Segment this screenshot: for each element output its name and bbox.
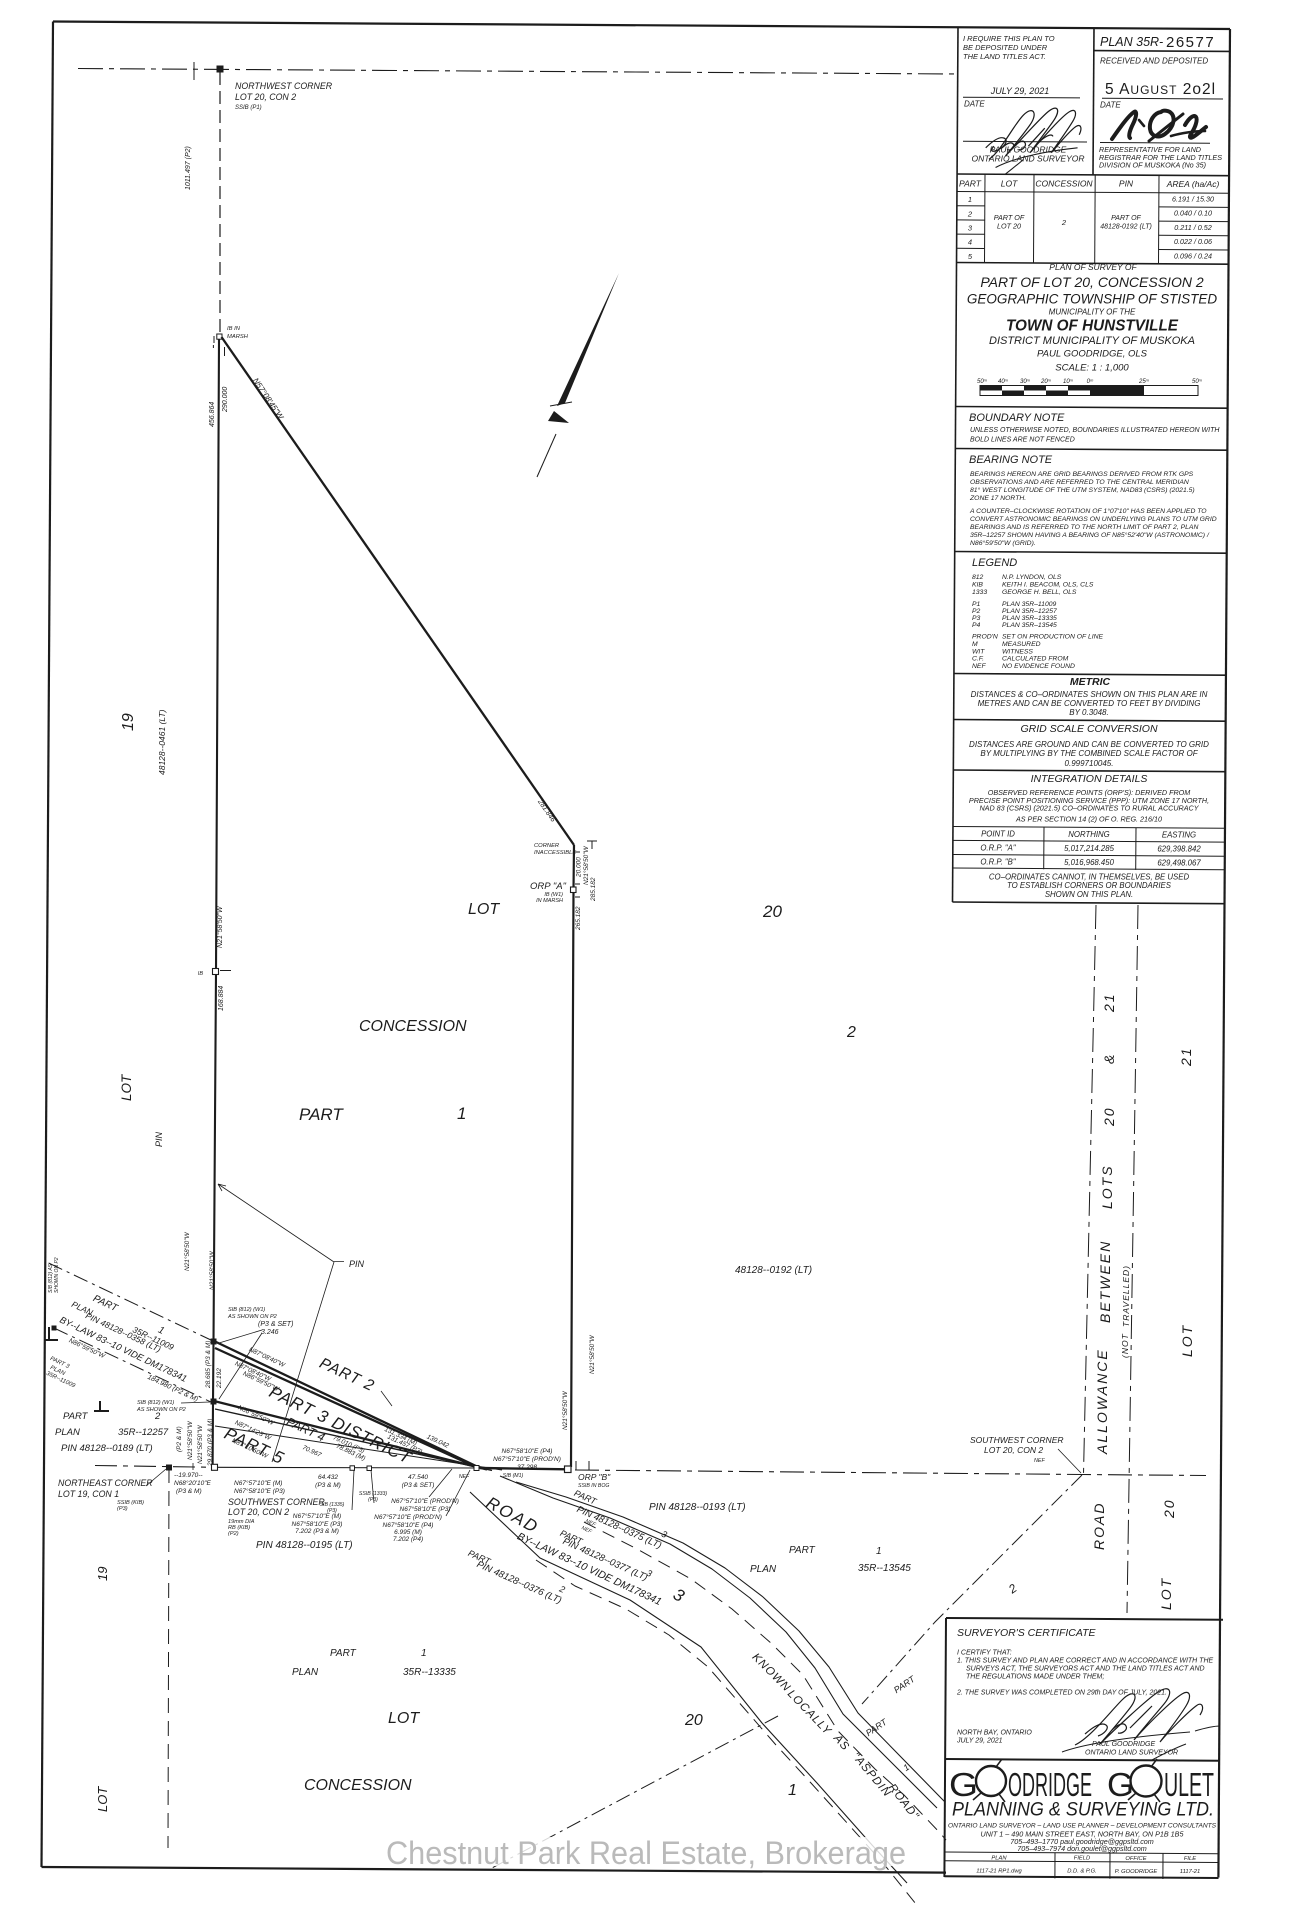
svg-text:6.995 (M): 6.995 (M) — [394, 1529, 422, 1536]
svg-text:3: 3 — [968, 224, 973, 233]
svg-text:SHOWN ON P2: SHOWN ON P2 — [54, 1257, 60, 1293]
svg-text:N67°58'10"E (P3): N67°58'10"E (P3) — [400, 1505, 451, 1513]
svg-text:SURVEYS ACT, THE SURVEYORS ACT: SURVEYS ACT, THE SURVEYORS ACT AND THE L… — [966, 1666, 1205, 1673]
svg-text:SSIB (P1): SSIB (P1) — [235, 105, 262, 111]
svg-text:(P3 & M): (P3 & M) — [176, 1488, 202, 1495]
svg-text:N21°58'50"W: N21°58'50"W — [208, 1250, 216, 1290]
svg-text:3.246: 3.246 — [261, 1329, 279, 1336]
svg-text:N67°57'10"E (M): N67°57'10"E (M) — [293, 1512, 341, 1520]
svg-text:NEF: NEF — [580, 1525, 593, 1535]
svg-text:PLAN OF SURVEY OF: PLAN OF SURVEY OF — [1049, 262, 1137, 272]
svg-text:CONCESSION: CONCESSION — [304, 1777, 412, 1794]
svg-text:TRAVELLED): TRAVELLED) — [1121, 1265, 1131, 1327]
svg-text:(P3): (P3) — [368, 1497, 378, 1503]
svg-text:BETWEEN: BETWEEN — [1097, 1240, 1113, 1323]
svg-text:20: 20 — [1161, 1498, 1177, 1519]
svg-text:4: 4 — [968, 238, 972, 247]
svg-text:2: 2 — [1005, 1581, 1020, 1597]
svg-text:DATE: DATE — [1100, 101, 1121, 110]
svg-text:ALLOWANCE: ALLOWANCE — [1094, 1348, 1110, 1455]
svg-text:DISTANCES ARE GROUND AND CAN B: DISTANCES ARE GROUND AND CAN BE CONVERTE… — [969, 740, 1209, 749]
svg-text:LOT: LOT — [1158, 1577, 1174, 1610]
svg-text:P2: P2 — [972, 608, 981, 615]
svg-text:PART: PART — [330, 1648, 357, 1659]
svg-text:28.685 (P3 & M): 28.685 (P3 & M) — [205, 1341, 212, 1389]
svg-text:0.999710045.: 0.999710045. — [1065, 759, 1114, 768]
svg-text:AS: AS — [830, 1732, 851, 1754]
svg-text:WITNESS: WITNESS — [1002, 648, 1033, 655]
svg-text:N57°08'45"W: N57°08'45"W — [251, 376, 286, 422]
svg-text:21: 21 — [1178, 1046, 1194, 1067]
svg-text:N67°57'10"E (PROD'N): N67°57'10"E (PROD'N) — [374, 1513, 442, 1521]
svg-text:TOWN OF HUNSTVILLE: TOWN OF HUNSTVILLE — [1006, 318, 1179, 335]
svg-text:PART: PART — [91, 1293, 120, 1314]
svg-text:BOLD LINES ARE NOT FENCED: BOLD LINES ARE NOT FENCED — [970, 437, 1075, 444]
svg-text:7.202 (P3 & M): 7.202 (P3 & M) — [295, 1528, 339, 1535]
svg-text:N67°58'10"E (P4): N67°58'10"E (P4) — [502, 1447, 553, 1455]
svg-text:456.864: 456.864 — [209, 402, 216, 427]
svg-text:PIN 48128--0189 (LT): PIN 48128--0189 (LT) — [61, 1443, 153, 1454]
svg-text:64.432: 64.432 — [318, 1474, 338, 1481]
svg-text:GRID SCALE CONVERSION: GRID SCALE CONVERSION — [1020, 723, 1158, 735]
svg-text:N86°59'50"W (GRID).: N86°59'50"W (GRID). — [970, 539, 1036, 547]
svg-text:25m: 25m — [1138, 378, 1150, 386]
svg-text:BOUNDARY NOTE: BOUNDARY NOTE — [969, 412, 1065, 424]
svg-text:2: 2 — [846, 1024, 856, 1041]
svg-text:1. THIS SURVEY AND PLAN ARE C: 1. THIS SURVEY AND PLAN ARE CORRECT AND … — [957, 1658, 1214, 1665]
svg-text:JULY 29, 2021: JULY 29, 2021 — [956, 1738, 1003, 1745]
svg-text:N67°57'10"E (M): N67°57'10"E (M) — [234, 1479, 282, 1487]
svg-text:1117-21 RP1.dwg: 1117-21 RP1.dwg — [976, 1869, 1022, 1875]
svg-text:(P3 & SET): (P3 & SET) — [258, 1321, 293, 1328]
svg-text:ZONE 17 NORTH.: ZONE 17 NORTH. — [969, 495, 1026, 502]
svg-text:629,498.067: 629,498.067 — [1157, 859, 1201, 868]
svg-text:812: 812 — [972, 574, 984, 581]
svg-text:(P3): (P3) — [117, 1506, 128, 1512]
svg-text:D.D. & P.G.: D.D. & P.G. — [1067, 1869, 1097, 1875]
svg-text:(NOT: (NOT — [1120, 1333, 1130, 1358]
svg-text:20m: 20m — [1040, 378, 1052, 386]
svg-text:N21°58'50"W: N21°58'50"W — [186, 1420, 194, 1460]
svg-text:Chestnut Park Real Estate, Bro: Chestnut Park Real Estate, Brokerage — [386, 1835, 906, 1871]
svg-text:(P3 & M): (P3 & M) — [315, 1482, 341, 1489]
svg-text:N.P. LYNDON, OLS: N.P. LYNDON, OLS — [1002, 574, 1062, 581]
svg-text:0.211 / 0.52: 0.211 / 0.52 — [1174, 223, 1211, 232]
svg-text:48128-0192 (LT): 48128-0192 (LT) — [1100, 224, 1152, 231]
svg-text:FILE: FILE — [1184, 1856, 1196, 1862]
svg-text:NAD 83 (CSRS) (2021.5) CO–ORDI: NAD 83 (CSRS) (2021.5) CO–ORDINATES TO R… — [979, 804, 1199, 813]
svg-text:AS SHOWN ON P2: AS SHOWN ON P2 — [136, 1407, 187, 1413]
svg-text:NORTHEAST CORNER: NORTHEAST CORNER — [58, 1478, 153, 1488]
svg-text:M: M — [972, 641, 978, 648]
svg-text:19: 19 — [120, 713, 137, 731]
svg-text:PART: PART — [864, 1716, 890, 1738]
svg-text:N21°58'50"W: N21°58'50"W — [196, 1424, 204, 1464]
svg-text:3: 3 — [670, 1585, 688, 1606]
svg-text:20: 20 — [684, 1712, 703, 1729]
svg-text:PART: PART — [789, 1545, 816, 1556]
svg-text:N21°58'50"W: N21°58'50"W — [561, 1390, 569, 1430]
svg-text:P. GOODRIDGE: P. GOODRIDGE — [1115, 1869, 1158, 1875]
svg-text:35R--12257: 35R--12257 — [118, 1427, 169, 1438]
svg-text:ULET: ULET — [1164, 1766, 1214, 1803]
svg-text:MEASURED: MEASURED — [1002, 641, 1041, 648]
svg-text:BE DEPOSITED UNDER: BE DEPOSITED UNDER — [963, 43, 1048, 52]
svg-text:I CERTIFY THAT:: I CERTIFY THAT: — [957, 1650, 1012, 1657]
svg-text:N21°58'50"W: N21°58'50"W — [183, 1231, 191, 1271]
svg-text:LOT 20, CON 2: LOT 20, CON 2 — [228, 1507, 289, 1517]
svg-text:OFFICE: OFFICE — [1125, 1856, 1146, 1862]
svg-text:CALCULATED FROM: CALCULATED FROM — [1002, 656, 1069, 663]
svg-text:WIT: WIT — [972, 648, 985, 655]
svg-text:(P2): (P2) — [228, 1531, 239, 1537]
svg-text:281.846: 281.846 — [536, 798, 557, 824]
svg-text:P4: P4 — [972, 622, 981, 629]
svg-text:THE LAND TITLES ACT.: THE LAND TITLES ACT. — [963, 52, 1046, 61]
svg-text:1: 1 — [876, 1546, 882, 1557]
svg-text:N21°58'50"W: N21°58'50"W — [216, 905, 224, 948]
svg-text:PART: PART — [892, 1673, 918, 1695]
svg-text:N67°58'10"E (P4): N67°58'10"E (P4) — [383, 1521, 434, 1529]
svg-text:PIN: PIN — [154, 1131, 164, 1147]
svg-text:G: G — [949, 1766, 978, 1803]
svg-text:265.182: 265.182 — [575, 906, 582, 931]
svg-text:NEF: NEF — [1034, 1458, 1045, 1464]
svg-text:PIN 48128--0195 (LT): PIN 48128--0195 (LT) — [256, 1540, 353, 1551]
svg-text:ORP "B": ORP "B" — [578, 1472, 611, 1482]
svg-text:30m: 30m — [1020, 378, 1031, 386]
svg-text:PIN 48128--0376 (LT): PIN 48128--0376 (LT) — [475, 1559, 563, 1606]
svg-text:KIB: KIB — [972, 582, 983, 589]
svg-text:IB IN: IB IN — [227, 326, 241, 332]
svg-text:P1: P1 — [972, 601, 981, 608]
svg-text:FIELD: FIELD — [1074, 1856, 1090, 1862]
svg-text:5: 5 — [968, 252, 973, 261]
svg-text:AS SHOWN ON P2: AS SHOWN ON P2 — [227, 1314, 278, 1320]
svg-text:UNLESS OTHERWISE NOTED, BOUNDA: UNLESS OTHERWISE NOTED, BOUNDARIES ILLUS… — [970, 427, 1220, 434]
svg-text:0.096 / 0.24: 0.096 / 0.24 — [1174, 252, 1212, 261]
svg-text:I REQUIRE THIS PLAN TO: I REQUIRE THIS PLAN TO — [963, 34, 1055, 43]
svg-text:NO EVIDENCE FOUND: NO EVIDENCE FOUND — [1002, 663, 1075, 670]
svg-text:SOUTHWEST CORNER: SOUTHWEST CORNER — [970, 1435, 1064, 1445]
svg-text:N67°58'10"E (P3): N67°58'10"E (P3) — [234, 1487, 285, 1495]
svg-text:20: 20 — [762, 902, 782, 921]
svg-text:629,398.842: 629,398.842 — [1157, 845, 1201, 854]
svg-text:PLAN 35R-: PLAN 35R- — [1100, 35, 1163, 49]
svg-text:GEORGE H. BELL, OLS: GEORGE H. BELL, OLS — [1002, 589, 1077, 596]
svg-text:C.F.: C.F. — [972, 656, 984, 663]
svg-text:LOT: LOT — [468, 901, 500, 918]
svg-text:NEF: NEF — [459, 1474, 470, 1480]
svg-text:10m: 10m — [1063, 378, 1074, 386]
svg-text:168.884: 168.884 — [218, 986, 225, 1011]
svg-text:50m: 50m — [1192, 378, 1203, 386]
svg-text:20: 20 — [1101, 1106, 1117, 1127]
svg-text:A COUNTER–CLOCKWISE ROTATION O: A COUNTER–CLOCKWISE ROTATION OF 1°07'10"… — [969, 507, 1207, 515]
svg-text:5,016,968.450: 5,016,968.450 — [1064, 858, 1115, 867]
svg-text:26577: 26577 — [1166, 34, 1215, 51]
svg-text:PLAN 35R–13335: PLAN 35R–13335 — [1002, 615, 1057, 622]
svg-text:ONTARIO LAND SURVEYOR: ONTARIO LAND SURVEYOR — [971, 154, 1084, 164]
svg-text:1117-21: 1117-21 — [1180, 1869, 1200, 1875]
svg-text:O.R.P. "B": O.R.P. "B" — [980, 858, 1017, 867]
svg-text:1011.497 (P2): 1011.497 (P2) — [185, 146, 192, 190]
svg-text:PIN: PIN — [349, 1259, 365, 1269]
svg-text:DISTANCES & CO–ORDINATES SHOWN: DISTANCES & CO–ORDINATES SHOWN ON THIS P… — [971, 690, 1208, 699]
svg-text:IB: IB — [198, 971, 204, 977]
svg-text:PLAN 35R–13545: PLAN 35R–13545 — [1002, 622, 1057, 629]
svg-text:2: 2 — [557, 1583, 567, 1595]
svg-text:21: 21 — [1101, 992, 1117, 1013]
svg-text:1: 1 — [421, 1648, 427, 1659]
svg-text:MARSH: MARSH — [227, 334, 249, 340]
svg-text:20.000: 20.000 — [576, 857, 583, 878]
svg-text:KEITH I. BEACOM, OLS, CLS: KEITH I. BEACOM, OLS, CLS — [1002, 582, 1094, 589]
svg-text:3: 3 — [645, 1568, 654, 1579]
svg-text:ROAD": ROAD" — [886, 1782, 922, 1823]
svg-text:PART: PART — [959, 179, 982, 189]
svg-text:N67°57'10"E (PROD'N): N67°57'10"E (PROD'N) — [391, 1497, 459, 1505]
svg-text:N67°57'10"E (PROD'N): N67°57'10"E (PROD'N) — [493, 1455, 561, 1463]
svg-text:290.000: 290.000 — [222, 387, 229, 413]
svg-text:CONCESSION: CONCESSION — [1035, 179, 1093, 189]
svg-text:BY MULTIPLYING BY THE COMBINED: BY MULTIPLYING BY THE COMBINED SCALE FAC… — [980, 749, 1198, 758]
svg-text:PLAN 35R–12257: PLAN 35R–12257 — [1002, 608, 1057, 615]
svg-text:THE REGULATIONS MADE UNDER THE: THE REGULATIONS MADE UNDER THEM; — [966, 1674, 1104, 1681]
svg-text:EASTING: EASTING — [1162, 831, 1196, 840]
svg-text:SET ON PRODUCTION OF LINE: SET ON PRODUCTION OF LINE — [1002, 634, 1104, 641]
svg-text:LOT 20, CON 2: LOT 20, CON 2 — [235, 92, 296, 102]
svg-text:INTEGRATION DETAILS: INTEGRATION DETAILS — [1031, 773, 1148, 785]
svg-text:N68°20'10"E: N68°20'10"E — [174, 1479, 212, 1487]
svg-text:P3: P3 — [972, 615, 981, 622]
svg-text:NORTHWEST CORNER: NORTHWEST CORNER — [235, 81, 333, 91]
svg-text:LOT 19, CON 1: LOT 19, CON 1 — [58, 1489, 119, 1499]
svg-text:50m: 50m — [977, 378, 988, 386]
svg-text:N21°58'50"W: N21°58'50"W — [582, 845, 590, 885]
svg-text:1: 1 — [788, 1782, 797, 1799]
svg-text:RECEIVED AND DEPOSITED: RECEIVED AND DEPOSITED — [1100, 57, 1208, 66]
svg-text:PLANNING & SURVEYING LTD.: PLANNING & SURVEYING LTD. — [952, 1799, 1214, 1821]
svg-text:MUNICIPALITY OF THE: MUNICIPALITY OF THE — [1049, 308, 1136, 317]
svg-text:PLAN: PLAN — [55, 1427, 80, 1438]
svg-text:NEF: NEF — [972, 663, 986, 670]
svg-text:0m: 0m — [1087, 378, 1094, 386]
svg-text:47.540: 47.540 — [408, 1474, 428, 1481]
svg-text:SSIB IN BOG: SSIB IN BOG — [578, 1483, 609, 1489]
svg-text:LOT: LOT — [388, 1710, 420, 1727]
svg-text:&: & — [1101, 1053, 1117, 1064]
svg-text:AREA (ha/Ac): AREA (ha/Ac) — [1166, 179, 1220, 189]
svg-text:40m: 40m — [998, 378, 1009, 386]
svg-text:ODRIDGE: ODRIDGE — [1008, 1766, 1092, 1803]
svg-text:7.202 (P4): 7.202 (P4) — [393, 1536, 423, 1543]
svg-text:IN MARSH: IN MARSH — [536, 898, 563, 904]
svg-text:PART OF LOT 20, CONCESSION 2: PART OF LOT 20, CONCESSION 2 — [980, 274, 1203, 290]
svg-text:CONCESSION: CONCESSION — [359, 1018, 467, 1035]
svg-text:BEARING NOTE: BEARING NOTE — [969, 454, 1053, 466]
svg-text:PART: PART — [63, 1411, 89, 1422]
svg-text:29.870 (P3 & M): 29.870 (P3 & M) — [207, 1419, 214, 1467]
svg-text:PLAN: PLAN — [750, 1564, 777, 1575]
svg-text:PLAN 35R–11009: PLAN 35R–11009 — [1002, 601, 1057, 608]
svg-text:CORNER: CORNER — [534, 843, 560, 849]
svg-text:5 AUGUST 2o2l: 5 AUGUST 2o2l — [1105, 81, 1216, 98]
svg-text:PART OF: PART OF — [1111, 215, 1141, 222]
svg-text:--19.970--: --19.970-- — [174, 1472, 203, 1479]
svg-text:PART 2: PART 2 — [317, 1355, 378, 1395]
svg-text:SIB (812) (W1): SIB (812) (W1) — [228, 1307, 265, 1313]
svg-text:CONVERT ASTRONOMIC BEARINGS ON: CONVERT ASTRONOMIC BEARINGS ON UNDERLYIN… — [970, 516, 1217, 523]
svg-text:PIN: PIN — [1119, 179, 1134, 189]
svg-text:BY 0.3048.: BY 0.3048. — [1069, 708, 1108, 717]
svg-text:TO ESTABLISH CORNERS OR BOUNDA: TO ESTABLISH CORNERS OR BOUNDARIES — [1007, 881, 1172, 890]
svg-text:22.192: 22.192 — [216, 1368, 223, 1389]
svg-text:SCALE: 1 : 1,000: SCALE: 1 : 1,000 — [1055, 363, 1129, 374]
svg-text:PAUL GOODRIDGE, OLS: PAUL GOODRIDGE, OLS — [1037, 349, 1148, 360]
svg-text:ROAD: ROAD — [483, 1493, 542, 1537]
svg-text:SIB (M1): SIB (M1) — [503, 1473, 524, 1479]
svg-text:BEARINGS AND IS REFERRED TO TH: BEARINGS AND IS REFERRED TO THE NORTH LI… — [970, 524, 1198, 531]
svg-text:LEGEND: LEGEND — [972, 557, 1017, 569]
svg-text:705–493–7974 don.goulet@ggpsl: 705–493–7974 don.goulet@ggpsltd.com — [1017, 1844, 1147, 1853]
svg-text:48128--0192 (LT): 48128--0192 (LT) — [735, 1265, 812, 1276]
svg-text:LOT: LOT — [1001, 179, 1018, 189]
svg-text:METRIC: METRIC — [1070, 676, 1111, 688]
svg-text:INACCESSIBLE: INACCESSIBLE — [534, 850, 576, 856]
svg-text:DATE: DATE — [964, 100, 985, 109]
svg-text:37.298: 37.298 — [517, 1464, 537, 1471]
svg-text:ONTARIO LAND SURVEYOR – LAND U: ONTARIO LAND SURVEYOR – LAND USE PLANNER… — [948, 1823, 1217, 1830]
svg-text:LOCALLY: LOCALLY — [785, 1688, 834, 1738]
svg-text:6.191 / 15.30: 6.191 / 15.30 — [1172, 195, 1214, 204]
svg-text:0.022 / 0.06: 0.022 / 0.06 — [1174, 237, 1212, 246]
svg-text:PIN 48128--0193 (LT): PIN 48128--0193 (LT) — [649, 1502, 746, 1513]
svg-text:DISTRICT MUNICIPALITY OF MUSKO: DISTRICT MUNICIPALITY OF MUSKOKA — [989, 335, 1195, 347]
svg-text:5,017,214.285: 5,017,214.285 — [1064, 844, 1115, 853]
svg-text:SURVEYOR'S CERTIFICATE: SURVEYOR'S CERTIFICATE — [957, 1627, 1097, 1639]
svg-text:LOT: LOT — [1179, 1324, 1195, 1357]
svg-text:1333: 1333 — [972, 589, 987, 596]
svg-text:35R--13545: 35R--13545 — [858, 1563, 911, 1574]
svg-text:ONTARIO LAND SURVEYOR: ONTARIO LAND SURVEYOR — [1085, 1750, 1178, 1757]
svg-text:SIB (812) (W1): SIB (812) (W1) — [137, 1400, 174, 1406]
svg-text:LOTS: LOTS — [1099, 1164, 1115, 1209]
svg-text:2: 2 — [967, 210, 973, 219]
svg-text:O.R.P. "A": O.R.P. "A" — [980, 844, 1017, 853]
svg-text:METRES AND CAN BE CONVERTED TO: METRES AND CAN BE CONVERTED TO FEET BY D… — [978, 699, 1201, 708]
svg-text:81° WEST LONGITUDE OF THE UTM: 81° WEST LONGITUDE OF THE UTM SYSTEM, NA… — [970, 486, 1195, 494]
svg-text:N67°58'10"E (P3): N67°58'10"E (P3) — [292, 1520, 343, 1528]
svg-text:PROD'N: PROD'N — [972, 634, 998, 641]
svg-text:ORP "A": ORP "A" — [530, 881, 567, 892]
svg-text:N21°58'50"W: N21°58'50"W — [588, 1334, 596, 1374]
svg-text:(P3 & SET): (P3 & SET) — [402, 1482, 435, 1489]
svg-text:35R–12257 SHOWN HAVING A BEARI: 35R–12257 SHOWN HAVING A BEARING OF N85°… — [970, 531, 1210, 539]
svg-text:0.040 / 0.10: 0.040 / 0.10 — [1174, 209, 1212, 218]
svg-text:POINT ID: POINT ID — [981, 830, 1015, 839]
svg-text:1: 1 — [901, 1762, 911, 1773]
svg-text:1: 1 — [968, 195, 972, 204]
svg-text:DIVISION OF MUSKOKA (No 35): DIVISION OF MUSKOKA (No 35) — [1099, 161, 1206, 170]
svg-text:1: 1 — [457, 1104, 466, 1123]
svg-text:PLAN: PLAN — [991, 1856, 1007, 1862]
svg-text:3: 3 — [660, 1529, 669, 1540]
svg-text:LOT 20, CON 2: LOT 20, CON 2 — [984, 1445, 1043, 1455]
svg-text:BEARINGS HEREON ARE GRID BEARI: BEARINGS HEREON ARE GRID BEARINGS DERIVE… — [970, 471, 1194, 478]
svg-text:35R--13335: 35R--13335 — [403, 1667, 456, 1678]
svg-text:LOT: LOT — [119, 1073, 134, 1101]
svg-text:19: 19 — [95, 1567, 110, 1581]
svg-text:ROAD: ROAD — [1091, 1502, 1107, 1550]
svg-text:(P2 & M): (P2 & M) — [176, 1426, 183, 1452]
svg-text:SHOWN ON THIS PLAN.: SHOWN ON THIS PLAN. — [1045, 890, 1133, 899]
svg-text:70.967: 70.967 — [301, 1444, 322, 1459]
svg-text:NORTH BAY, ONTARIO: NORTH BAY, ONTARIO — [957, 1730, 1032, 1737]
svg-text:LOT 20: LOT 20 — [997, 222, 1021, 231]
svg-text:LOT: LOT — [95, 1786, 110, 1812]
svg-text:OBSERVATIONS AND ARE REFERRED: OBSERVATIONS AND ARE REFERRED TO THE CEN… — [970, 479, 1189, 486]
svg-text:285.182: 285.182 — [590, 877, 597, 902]
svg-text:48128--0461 (LT): 48128--0461 (LT) — [157, 709, 167, 775]
svg-text:SOUTHWEST CORNER: SOUTHWEST CORNER — [228, 1497, 325, 1507]
svg-text:JULY 29, 2021: JULY 29, 2021 — [990, 86, 1050, 96]
svg-text:KNOWN: KNOWN — [750, 1651, 793, 1694]
svg-text:2: 2 — [1061, 218, 1067, 227]
svg-text:PLAN: PLAN — [292, 1667, 319, 1678]
svg-text:AS PER SECTION 14 (2) OF O. RE: AS PER SECTION 14 (2) OF O. REG. 216/10 — [1015, 815, 1162, 824]
svg-text:NORTHING: NORTHING — [1068, 830, 1109, 839]
svg-text:PART: PART — [299, 1105, 344, 1124]
svg-text:GEOGRAPHIC TOWNSHIP OF STISTED: GEOGRAPHIC TOWNSHIP OF STISTED — [967, 292, 1218, 307]
